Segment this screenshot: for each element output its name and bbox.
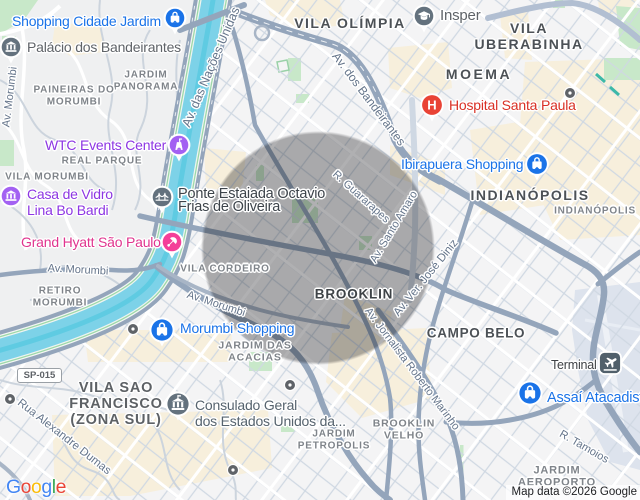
svg-text:H: H	[427, 98, 436, 113]
